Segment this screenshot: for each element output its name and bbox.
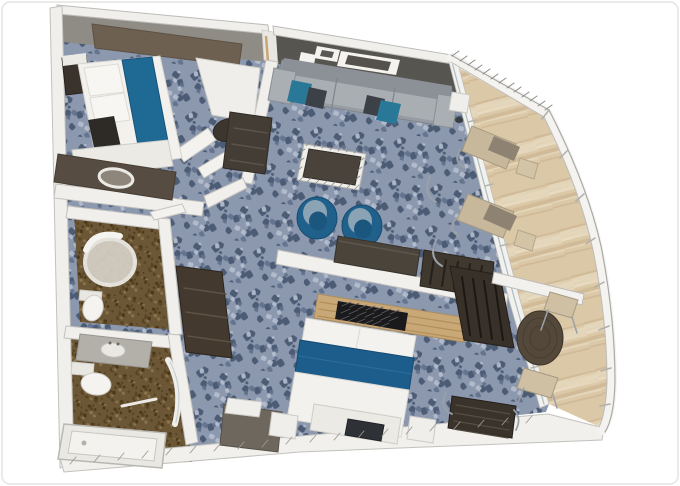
bench-cabinet-top <box>225 398 262 417</box>
side-table <box>449 92 470 113</box>
faucet-dot-a <box>109 342 112 345</box>
barrel-chair-2-seat <box>354 220 372 239</box>
balcony-round-table <box>517 311 563 365</box>
side-table-item <box>455 117 463 123</box>
floor-plan-svg <box>0 0 680 486</box>
nightstand-left <box>269 412 298 439</box>
shower-enclosure-glass <box>85 239 135 285</box>
bathtub-drain <box>82 441 87 446</box>
faucet-dot-b <box>117 343 120 346</box>
pillow-dark-left <box>305 87 327 109</box>
floor-plan-figure <box>0 0 680 486</box>
barrel-chair-1-seat <box>309 212 327 231</box>
scene-root <box>0 0 680 486</box>
bed2-pillow-a <box>84 64 124 96</box>
wardrobe-bedroom2 <box>223 112 272 174</box>
screenshot-frame <box>0 0 680 486</box>
